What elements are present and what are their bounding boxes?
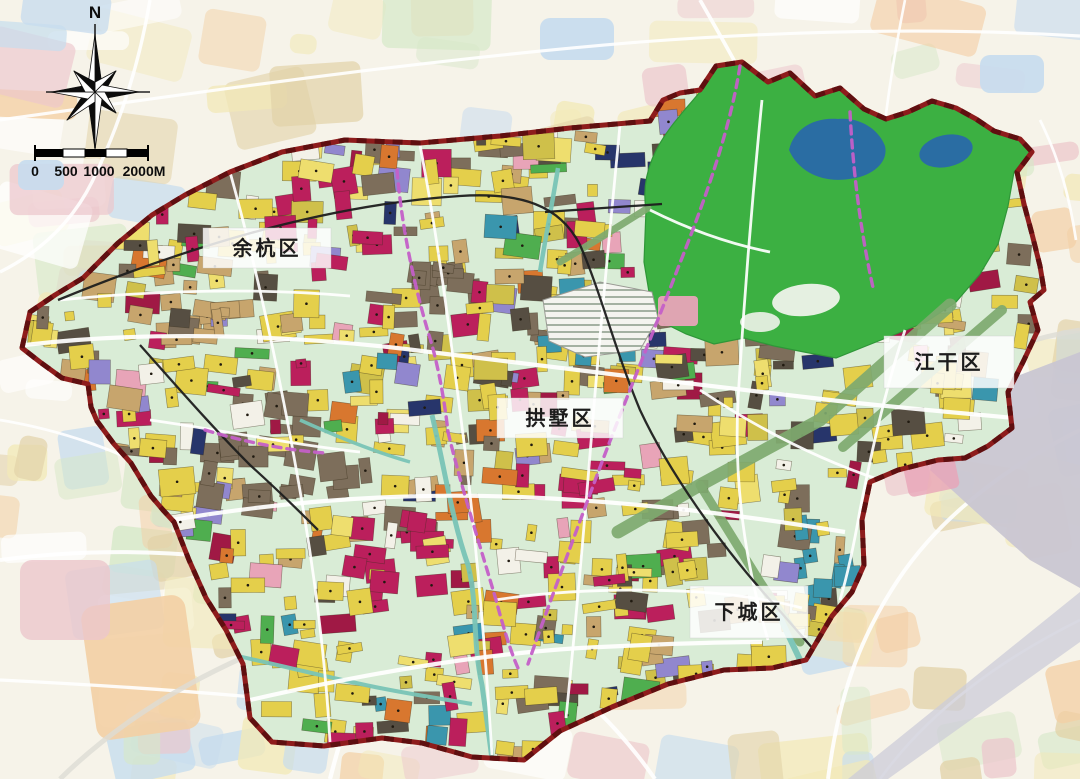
parcel-dot [1018, 253, 1021, 256]
park-clearing [740, 312, 780, 332]
parcel-dot [353, 566, 356, 569]
scale-tick-0: 0 [31, 163, 39, 179]
parcel-dot [550, 566, 553, 569]
parcel-dot [359, 601, 362, 604]
parcel-dot [246, 414, 249, 417]
parcel-dot [295, 438, 298, 441]
parcel-dot [501, 702, 504, 705]
parcel-dot [594, 148, 597, 151]
zoning-parcel [562, 624, 573, 634]
parcel-dot [373, 507, 376, 510]
parcel-dot [103, 413, 106, 416]
parcel-dot [432, 658, 435, 661]
parcel-dot [152, 447, 155, 450]
context-land-patch [677, 0, 754, 18]
parcel-dot [926, 434, 929, 437]
parcel-dot [825, 613, 828, 616]
parcel-dot [693, 422, 696, 425]
context-land-patch [981, 737, 1017, 779]
parcel-dot [615, 380, 618, 383]
parcel-dot [887, 438, 890, 441]
zoning-parcel [352, 153, 375, 176]
parcel-dot [403, 355, 406, 358]
parcel-dot [130, 450, 133, 453]
zoning-parcel [520, 275, 552, 302]
parcel-dot [423, 406, 426, 409]
parcel-dot [592, 626, 595, 629]
parcel-dot [387, 316, 390, 319]
context-land-patch [25, 379, 73, 402]
parcel-dot [176, 480, 179, 483]
district-label-text: 余杭区 [232, 236, 302, 260]
parcel-dot [952, 437, 955, 440]
zoning-parcel [557, 517, 570, 538]
parcel-dot [505, 140, 508, 143]
parcel-dot [374, 605, 377, 608]
parcel-dot [547, 635, 550, 638]
parcel-dot [375, 390, 378, 393]
parcel-dot [258, 495, 261, 498]
parcel-dot [394, 485, 397, 488]
parcel-dot [633, 484, 636, 487]
context-land-patch [727, 730, 786, 779]
parcel-dot [133, 437, 136, 440]
parcel-dot [761, 382, 764, 385]
zoning-parcel [588, 184, 598, 196]
parcel-dot [490, 442, 493, 445]
parcel-dot [128, 413, 131, 416]
parcel-dot [300, 187, 303, 190]
parcel-dot [175, 338, 178, 341]
parcel-dot [300, 362, 303, 365]
parcel-dot [868, 450, 871, 453]
context-land-patch [649, 20, 758, 64]
parcel-dot [277, 325, 280, 328]
context-land-patch [1033, 752, 1080, 779]
parcel-dot [630, 600, 633, 603]
parcel-dot [598, 605, 601, 608]
zoning-parcel [378, 412, 388, 424]
context-land-patch [382, 0, 493, 51]
parcel-dot [230, 624, 233, 627]
parcel-dot [434, 340, 437, 343]
map-canvas: 余杭区 拱墅区 江干区 下城区 N 0 500 1000 2000M [0, 0, 1080, 779]
zoning-parcel [628, 633, 653, 663]
zoning-parcel [747, 414, 768, 440]
parcel-dot [405, 297, 408, 300]
parcel-dot [478, 399, 481, 402]
parcel-dot [383, 581, 386, 584]
context-pink-zone [20, 560, 110, 640]
parcel-dot [373, 148, 376, 151]
context-pond [540, 18, 614, 60]
zoning-parcel [89, 360, 111, 384]
parcel-dot [667, 121, 670, 124]
district-label-text: 拱墅区 [526, 407, 595, 430]
scale-tick-2000m: 2000M [123, 163, 166, 179]
parcel-dot [150, 372, 153, 375]
parcel-dot [161, 213, 164, 216]
parcel-dot [316, 725, 319, 728]
parcel-dot [449, 695, 452, 698]
parcel-dot [592, 258, 595, 261]
parcel-dot [561, 586, 564, 589]
parcel-dot [223, 477, 226, 480]
zoning-parcel [107, 385, 143, 412]
zoning-parcel [331, 515, 354, 537]
parcel-dot [266, 628, 269, 631]
parcel-dot [601, 568, 604, 571]
parcel-dot [525, 633, 528, 636]
parcel-dot [418, 277, 421, 280]
parcel-dot [499, 225, 502, 228]
parcel-dot [682, 433, 685, 436]
parcel-dot [379, 703, 382, 706]
parcel-dot [366, 236, 369, 239]
parcel-dot [556, 722, 559, 725]
zoning-parcel [477, 313, 491, 341]
parcel-dot [681, 538, 684, 541]
parcel-dot [389, 212, 392, 215]
parcel-dot [189, 286, 192, 289]
parcel-dot [783, 493, 786, 496]
parcel-dot [907, 420, 910, 423]
parcel-dot [275, 405, 278, 408]
parcel-dot [317, 399, 320, 402]
parcel-dot [508, 275, 511, 278]
parcel-dot [887, 430, 890, 433]
parcel-dot [478, 291, 481, 294]
parcel-dot [530, 531, 533, 534]
parcel-dot [315, 170, 318, 173]
district-label-text: 江干区 [915, 351, 984, 374]
parcel-dot [489, 429, 492, 432]
zoning-parcel [276, 548, 305, 558]
parcel-dot [728, 497, 731, 500]
parcel-dot [541, 358, 544, 361]
parcel-dot [351, 380, 354, 383]
parcel-dot [436, 304, 439, 307]
parcel-dot [761, 372, 764, 375]
parcel-dot [607, 697, 610, 700]
parcel-dot [225, 554, 228, 557]
parcel-dot [219, 363, 222, 366]
parcel-dot [562, 394, 565, 397]
parcel-dot [502, 179, 505, 182]
parcel-dot [345, 334, 348, 337]
parcel-dot [510, 691, 513, 694]
parcel-dot [273, 210, 276, 213]
parcel-dot [405, 681, 408, 684]
parcel-dot [626, 271, 629, 274]
parcel-dot [343, 180, 346, 183]
parcel-dot [544, 627, 547, 630]
scale-tick-1000: 1000 [83, 163, 114, 179]
parcel-dot [782, 364, 785, 367]
parcel-dot [461, 364, 464, 367]
parcel-dot [776, 398, 779, 401]
parcel-dot [463, 462, 466, 465]
north-label: N [89, 3, 101, 22]
zoning-parcel [454, 654, 470, 675]
parcel-dot [782, 464, 785, 467]
parcel-dot [306, 211, 309, 214]
parcel-dot [81, 355, 84, 358]
parcel-dot [571, 380, 574, 383]
parcel-dot [395, 343, 398, 346]
district-label-xiacheng: 下城区 [690, 586, 808, 638]
zoning-parcel [719, 416, 746, 437]
parcel-dot [260, 651, 263, 654]
zoning-parcel [407, 511, 428, 533]
parcel-dot [563, 264, 566, 267]
parcel-dot [329, 590, 332, 593]
parcel-dot [633, 571, 636, 574]
parcel-dot [388, 447, 391, 450]
zoning-parcel [64, 311, 74, 321]
parcel-dot [179, 521, 182, 524]
parcel-dot [178, 363, 181, 366]
parcel-dot [193, 233, 196, 236]
parcel-dot [305, 302, 308, 305]
context-land-patch [289, 33, 317, 55]
parcel-dot [346, 428, 349, 431]
parcel-dot [363, 730, 366, 733]
context-land-patch [269, 61, 364, 127]
parcel-dot [519, 318, 522, 321]
parcel-dot [621, 566, 624, 569]
parcel-dot [686, 569, 689, 572]
parcel-dot [673, 555, 676, 558]
parcel-dot [537, 145, 540, 148]
parcel-dot [838, 548, 841, 551]
zoning-parcel [569, 684, 589, 695]
context-land-patch [197, 8, 267, 73]
parcel-dot [170, 301, 173, 304]
urban-planning-map: 余杭区 拱墅区 江干区 下城区 N 0 500 1000 2000M [0, 0, 1080, 779]
parcel-dot [368, 553, 371, 556]
parcel-dot [818, 628, 821, 631]
parcel-dot [139, 244, 142, 247]
parcel-dot [755, 394, 758, 397]
zoning-parcel [553, 440, 580, 457]
parcel-dot [702, 436, 705, 439]
parcel-dot [521, 244, 524, 247]
parcel-dot [364, 469, 367, 472]
parcel-dot [507, 560, 510, 563]
zoning-parcel [943, 397, 970, 419]
parcel-dot [391, 725, 394, 728]
parcel-dot [254, 207, 257, 210]
parcel-dot [574, 262, 577, 265]
parcel-dot [1025, 283, 1028, 286]
parcel-dot [190, 379, 193, 382]
zoning-parcel [261, 701, 291, 717]
parcel-dot [706, 665, 709, 668]
parcel-dot [375, 313, 378, 316]
parcel-dot [430, 584, 433, 587]
parcel-dot [422, 488, 425, 491]
zoning-parcel [761, 555, 781, 579]
parcel-dot [217, 321, 220, 324]
parcel-dot [606, 464, 609, 467]
parcel-dot [373, 331, 376, 334]
parcel-dot [467, 600, 470, 603]
district-label-yuhang: 余杭区 [203, 228, 331, 268]
zoning-parcel [361, 172, 395, 196]
parcel-dot [224, 596, 227, 599]
parcel-dot [467, 323, 470, 326]
parcel-dot [303, 623, 306, 626]
parcel-dot [208, 472, 211, 475]
zoning-parcel [270, 420, 280, 435]
parcel-dot [370, 364, 373, 367]
parcel-dot [390, 534, 393, 537]
parcel-dot [792, 518, 795, 521]
parcel-dot [721, 351, 724, 354]
zoning-parcel [524, 686, 558, 705]
zoning-parcel [284, 596, 297, 610]
parcel-dot [530, 444, 533, 447]
parcel-dot [767, 655, 770, 658]
parcel-dot [459, 250, 462, 253]
parcel-dot [816, 360, 819, 363]
parcel-dot [351, 692, 354, 695]
parcel-dot [509, 672, 512, 675]
parcel-dot [549, 614, 552, 617]
parcel-dot [288, 623, 291, 626]
parcel-dot [595, 507, 598, 510]
parcel-dot [495, 543, 498, 546]
parcel-dot [216, 452, 219, 455]
context-pond [980, 55, 1044, 93]
parcel-dot [139, 314, 142, 317]
parcel-dot [397, 709, 400, 712]
parcel-dot [456, 501, 459, 504]
parcel-dot [222, 389, 225, 392]
parcel-dot [264, 286, 267, 289]
parcel-dot [215, 279, 218, 282]
district-label-jianggan: 江干区 [884, 336, 1014, 388]
parcel-dot [521, 474, 524, 477]
parcel-dot [796, 497, 799, 500]
parcel-dot [649, 580, 652, 583]
zoning-parcel [169, 308, 191, 328]
parcel-dot [431, 550, 434, 553]
zoning-parcel [317, 451, 347, 482]
zoning-parcel [449, 718, 468, 747]
parcel-dot [348, 647, 351, 650]
scale-tick-500: 500 [54, 163, 78, 179]
parcel-dot [479, 307, 482, 310]
parcel-dot [606, 151, 609, 154]
parcel-dot [171, 396, 174, 399]
parcel-dot [172, 264, 175, 267]
zoning-parcel [300, 629, 315, 639]
parcel-dot [634, 508, 637, 511]
parcel-dot [864, 417, 867, 420]
parcel-dot [836, 472, 839, 475]
parcel-dot [450, 184, 453, 187]
parcel-dot [809, 555, 812, 558]
zoning-parcel [309, 506, 333, 531]
pink-parcel [658, 296, 698, 326]
parcel-dot [608, 579, 611, 582]
zoning-parcel [447, 632, 477, 657]
zoning-parcel [495, 741, 514, 756]
parcel-dot [642, 565, 645, 568]
parcel-dot [799, 567, 802, 570]
zoning-parcel [319, 613, 356, 634]
zoning-parcel [426, 725, 448, 745]
zoning-parcel [813, 578, 832, 598]
parcel-dot [527, 601, 530, 604]
parcel-dot [433, 673, 436, 676]
parcel-dot [498, 475, 501, 478]
zoning-parcel [209, 562, 229, 580]
parcel-dot [41, 316, 44, 319]
parcel-dot [237, 541, 240, 544]
parcel-dot [251, 352, 254, 355]
parcel-dot [442, 266, 445, 269]
zoning-parcel [624, 468, 642, 479]
district-label-gongshu: 拱墅区 [497, 398, 623, 438]
zoning-parcel [531, 163, 567, 173]
parcel-dot [517, 490, 520, 493]
parcel-dot [671, 366, 674, 369]
zoning-parcel [655, 354, 682, 364]
district-label-text: 下城区 [715, 600, 784, 624]
parcel-dot [523, 377, 526, 380]
parcel-dot [247, 584, 250, 587]
parcel-dot [412, 661, 415, 664]
parcel-dot [388, 155, 391, 158]
zoning-parcel [125, 281, 146, 298]
parcel-dot [671, 571, 674, 574]
parcel-dot [585, 136, 588, 139]
zoning-parcel [334, 191, 352, 220]
parcel-dot [252, 455, 255, 458]
parcel-dot [361, 527, 364, 530]
parcel-dot [852, 473, 855, 476]
zoning-parcel [376, 353, 397, 370]
zoning-parcel [394, 362, 420, 387]
